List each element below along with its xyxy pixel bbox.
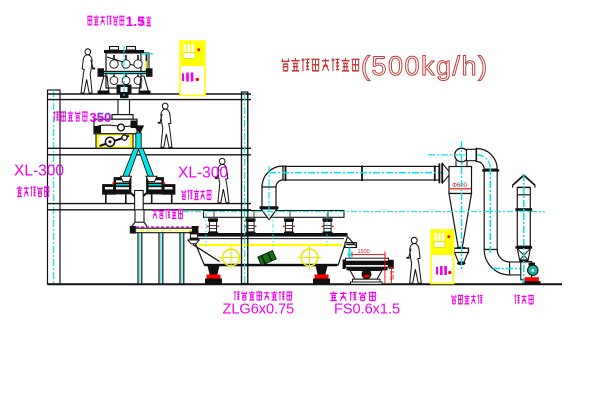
- svg-text:FS0.6x1.5: FS0.6x1.5: [334, 302, 400, 318]
- svg-text:545: 545: [388, 271, 394, 280]
- svg-text:XL-300: XL-300: [178, 165, 228, 182]
- svg-text:XL-300: XL-300: [14, 163, 64, 180]
- svg-text:1500: 1500: [358, 249, 370, 255]
- svg-text:Φ600: Φ600: [452, 183, 467, 189]
- svg-text:(500kg/h): (500kg/h): [361, 51, 489, 81]
- svg-text:350: 350: [90, 110, 112, 125]
- svg-text:ZLG6x0.75: ZLG6x0.75: [223, 302, 295, 318]
